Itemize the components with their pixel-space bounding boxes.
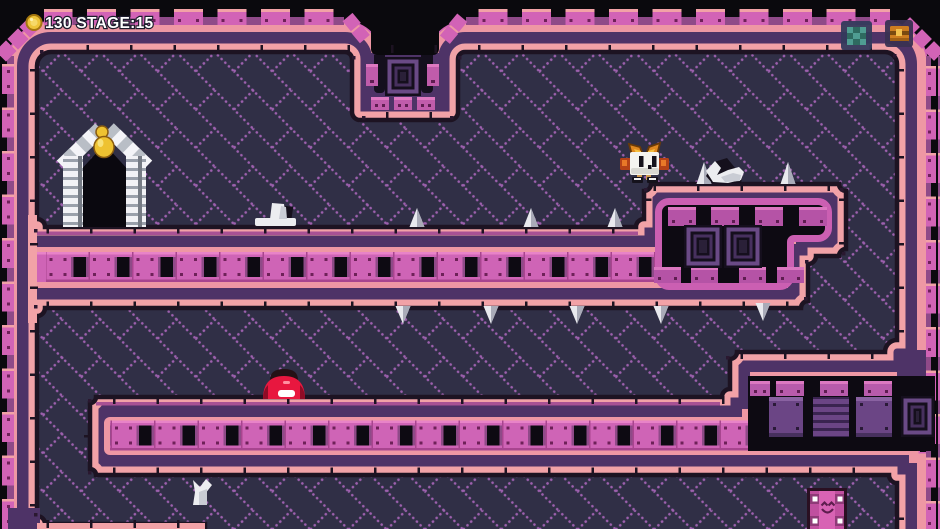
svg-text:130 STAGE:15: 130 STAGE:15 xyxy=(45,15,153,32)
